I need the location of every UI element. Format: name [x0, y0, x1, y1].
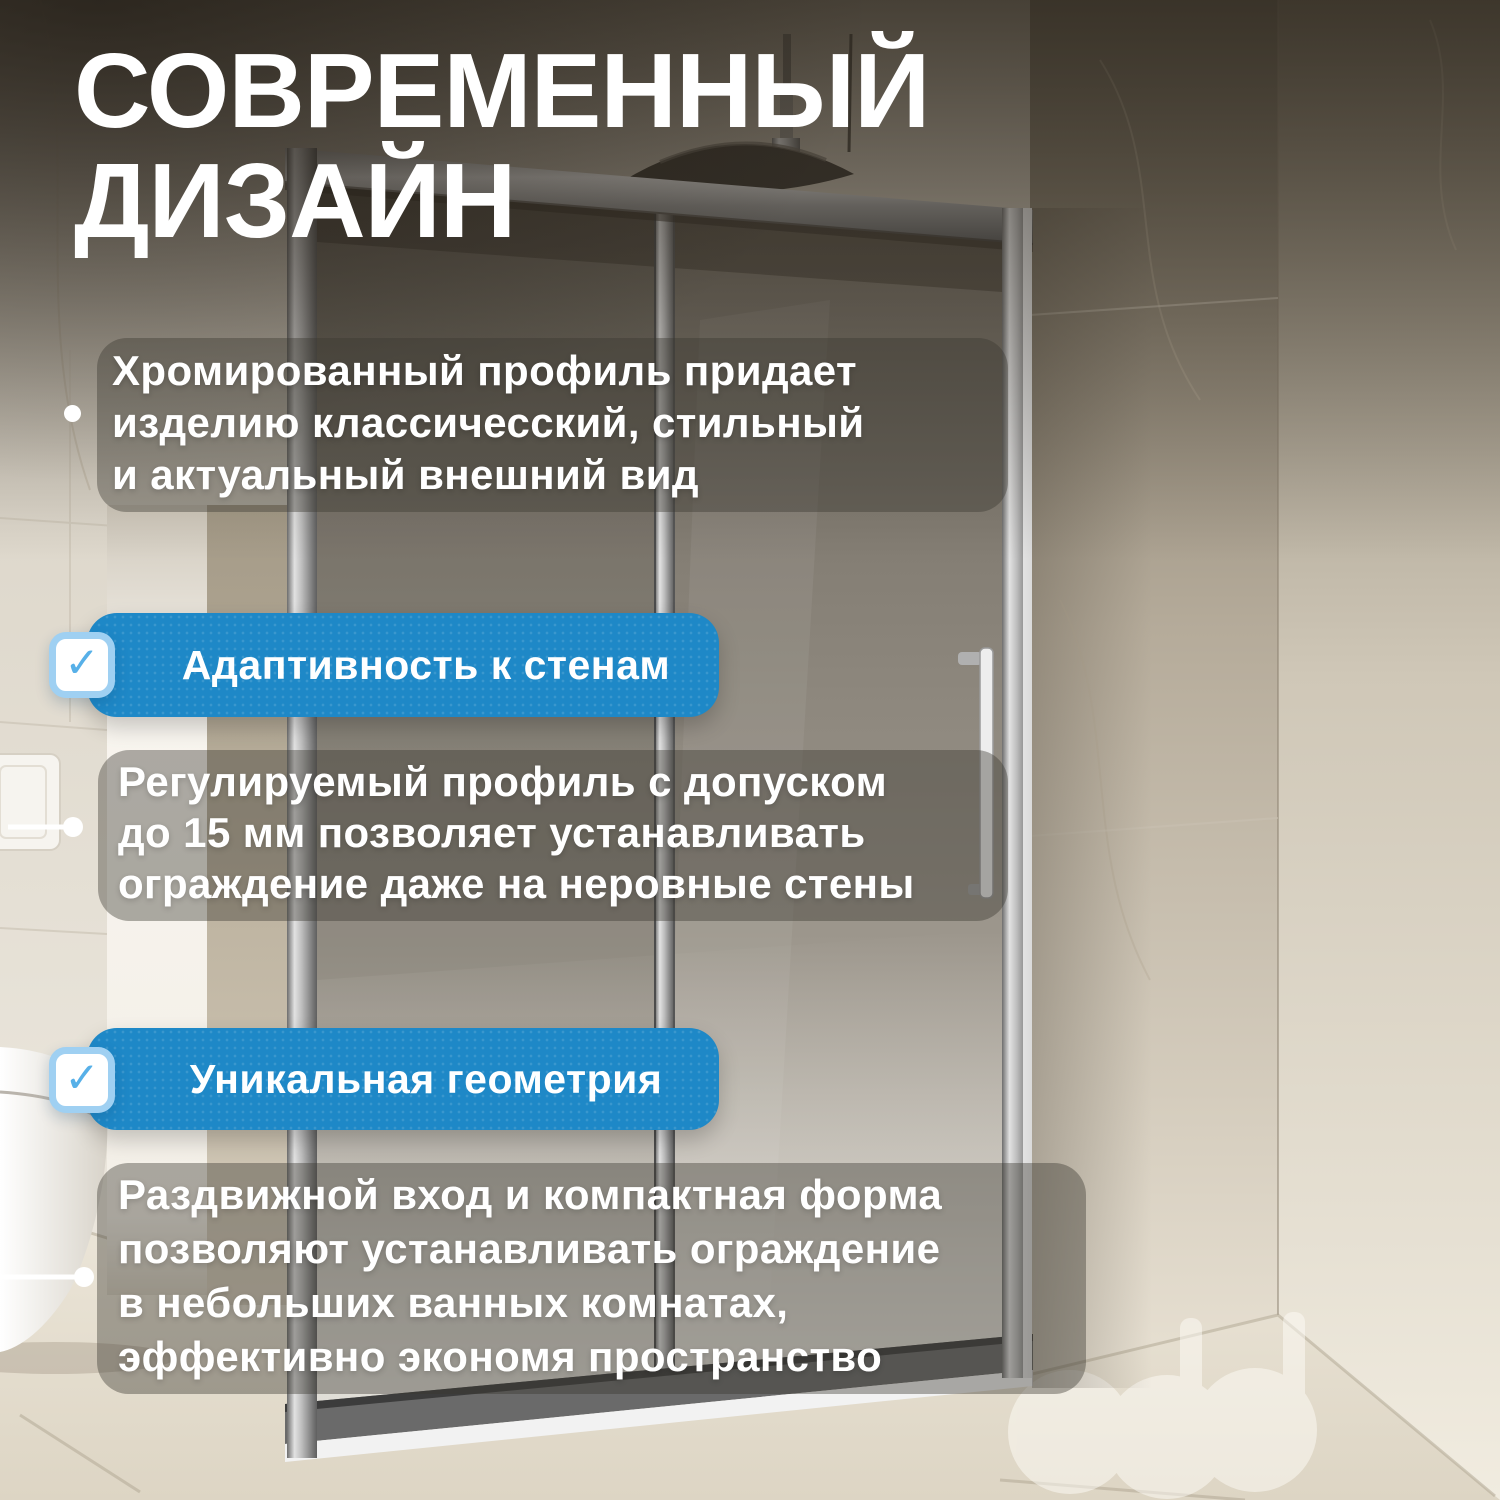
infographic-card: СОВРЕМЕННЫЙ ДИЗАЙН Хромированный профиль…	[0, 0, 1500, 1500]
checkbox-icon: ✓	[49, 1047, 115, 1113]
feature-banner-label: Адаптивность к стенам	[136, 642, 670, 689]
description-line: эффективно экономя пространство	[118, 1330, 1062, 1384]
intro-text-box: Хромированный профиль придает изделию кл…	[97, 338, 1008, 512]
intro-line: и актуальный внешний вид	[112, 449, 988, 501]
description-line: в небольших ванных комнатах,	[118, 1276, 1062, 1330]
page-title-line: СОВРЕМЕННЫЙ	[74, 36, 929, 146]
checkbox-icon: ✓	[49, 632, 115, 698]
intro-line: изделию классичесский, стильный	[112, 397, 988, 449]
description-line: ограждение даже на неровные стены	[118, 858, 984, 909]
feature-banner-adaptivity: ✓ Адаптивность к стенам	[87, 613, 719, 717]
feature-description-adaptivity: Регулируемый профиль с допуском до 15 мм…	[98, 750, 1008, 921]
description-line: Раздвижной вход и компактная форма	[118, 1168, 1062, 1222]
checkmark-icon: ✓	[64, 1057, 99, 1099]
bullet-dot-icon	[64, 405, 81, 422]
description-line: Регулируемый профиль с допуском	[118, 756, 984, 807]
description-line: до 15 мм позволяет устанавливать	[118, 807, 984, 858]
checkmark-icon: ✓	[64, 642, 99, 684]
page-title-line: ДИЗАЙН	[74, 146, 929, 256]
page-title: СОВРЕМЕННЫЙ ДИЗАЙН	[74, 36, 929, 256]
feature-description-geometry: Раздвижной вход и компактная форма позво…	[97, 1163, 1086, 1394]
intro-line: Хромированный профиль придает	[112, 345, 988, 397]
feature-banner-label: Уникальная геометрия	[144, 1056, 663, 1103]
description-line: позволяют устанавливать ограждение	[118, 1222, 1062, 1276]
feature-banner-geometry: ✓ Уникальная геометрия	[87, 1028, 719, 1130]
